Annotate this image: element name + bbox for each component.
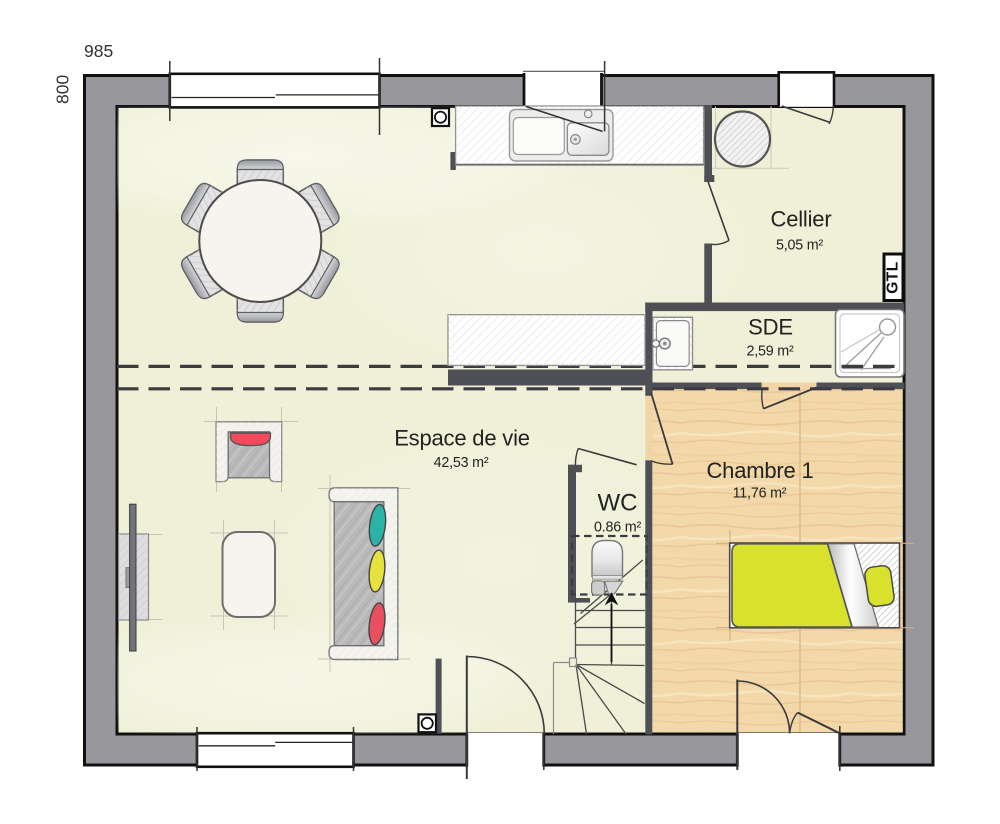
svg-text:800: 800 <box>53 75 73 104</box>
svg-text:Espace de vie: Espace de vie <box>394 426 530 451</box>
svg-text:WC: WC <box>598 490 638 517</box>
svg-text:SDE: SDE <box>748 315 793 340</box>
svg-text:GTL: GTL <box>885 261 902 294</box>
svg-text:Chambre 1: Chambre 1 <box>706 458 813 483</box>
svg-text:0.86 m²: 0.86 m² <box>594 520 642 536</box>
svg-text:11,76 m²: 11,76 m² <box>733 486 787 502</box>
svg-text:42,53 m²: 42,53 m² <box>434 455 489 471</box>
svg-text:985: 985 <box>84 41 113 61</box>
svg-text:5,05 m²: 5,05 m² <box>776 238 824 254</box>
svg-text:Cellier: Cellier <box>771 207 832 232</box>
svg-text:2,59 m²: 2,59 m² <box>746 344 794 360</box>
